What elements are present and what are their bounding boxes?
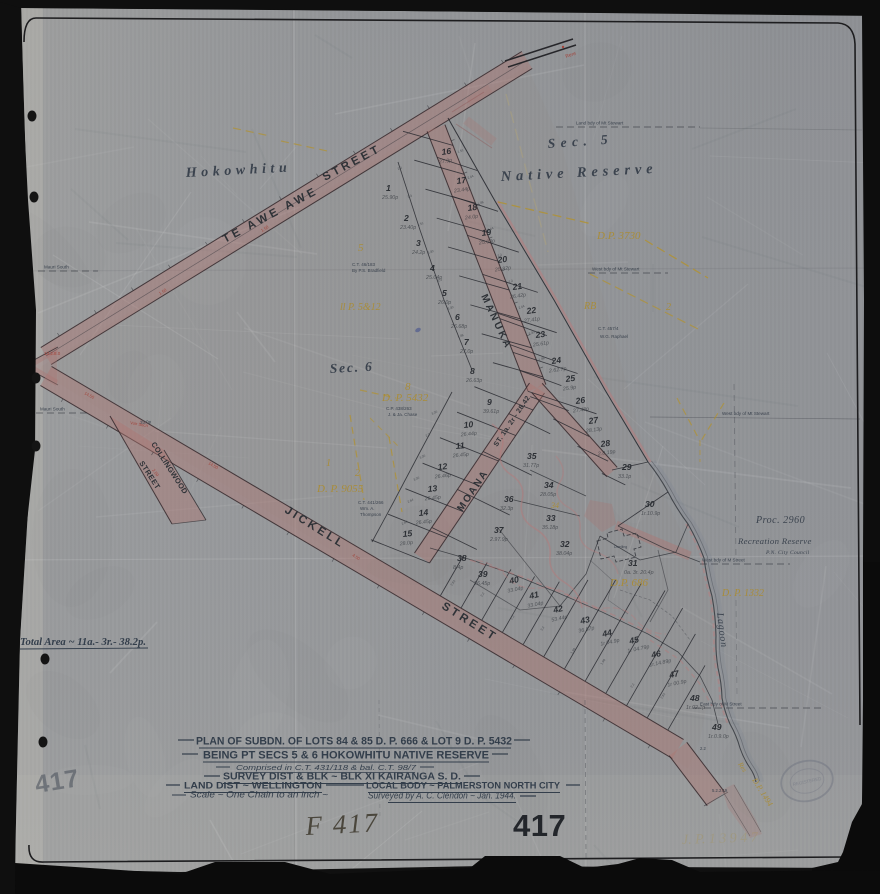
svg-text:28.05p: 28.05p [539,492,556,498]
svg-text:J. & Ja. Chase: J. & Ja. Chase [388,412,418,417]
svg-text:26.63p: 26.63p [465,378,482,384]
svg-text:C.T. 46/183: C.T. 46/183 [352,262,376,267]
svg-text:3: 3 [416,238,421,248]
svg-text:34: 34 [544,480,554,490]
svg-text:1r.10.9p: 1r.10.9p [641,511,660,517]
svg-text:39: 39 [478,569,488,579]
svg-text:West bdy of Mt Stewart: West bdy of Mt Stewart [722,411,770,416]
svg-text:26.45p: 26.45p [473,581,490,587]
svg-text:14: 14 [418,507,429,518]
svg-text:12: 12 [437,461,448,472]
svg-text:RB: RB [583,301,596,312]
svg-text:8: 8 [470,366,475,376]
svg-text:0a. 3r. 20.4p: 0a. 3r. 20.4p [624,570,654,576]
svg-text:6: 6 [455,312,460,322]
svg-text:35.18p: 35.18p [542,525,558,531]
svg-text:23.40p: 23.40p [399,225,416,231]
svg-text:1r.0.9.0p: 1r.0.9.0p [708,734,729,740]
svg-text:By P.S. Bradfield: By P.S. Bradfield [352,268,386,273]
svg-text:25.90p: 25.90p [381,195,398,201]
svg-text:23: 23 [534,329,546,340]
svg-text:1: 1 [386,183,391,193]
svg-text:C.T. 441/266: C.T. 441/266 [358,500,384,505]
svg-text:31.77p: 31.77p [523,463,539,469]
svg-text:ll P. 5&12: ll P. 5&12 [340,302,381,313]
svg-text:25: 25 [564,373,576,384]
svg-text:Sec. 6: Sec. 6 [329,359,372,376]
svg-text:D. P. 5432: D. P. 5432 [381,392,429,404]
svg-text:24.2p: 24.2p [411,250,425,256]
svg-text:Mauri South: Mauri South [40,407,65,412]
svg-text:30: 30 [645,499,655,509]
svg-text:16: 16 [441,146,452,157]
svg-text:D. P. 9055: D. P. 9055 [316,483,364,495]
svg-text:37: 37 [494,525,505,535]
svg-text:13: 13 [427,483,438,494]
svg-text:27.0p: 27.0p [459,349,473,355]
svg-text:2: 2 [666,302,671,313]
svg-text:Thompson: Thompson [360,512,382,517]
svg-text:26.0p: 26.0p [437,300,451,306]
svg-text:32.3p: 32.3p [500,506,513,512]
svg-text:39.61p: 39.61p [483,409,499,415]
svg-text:26: 26 [574,395,586,406]
svg-text:W.G. Raphael: W.G. Raphael [600,334,628,339]
svg-text:D.P. 3730: D.P. 3730 [596,230,641,242]
svg-text:PLAN OF SUBDN. OF LOTS 84 & 85: PLAN OF SUBDN. OF LOTS 84 & 85 D. P. 666… [196,736,512,748]
svg-text:Surveyed by A. C. Clendon ~: Surveyed by A. C. Clendon ~ Jan. 1944. [368,791,516,801]
svg-text:2: 2 [355,468,360,479]
svg-text:West bdy of Mt Stewart: West bdy of Mt Stewart [592,267,640,272]
svg-text:24: 24 [550,355,562,366]
svg-text:Scale ~ One Chain to an inch ~: Scale ~ One Chain to an inch ~ [190,790,328,800]
svg-text:9: 9 [487,397,492,407]
svg-text:18: 18 [467,202,478,213]
svg-text:33.1p: 33.1p [618,474,631,480]
svg-text:5: 5 [358,242,364,254]
svg-text:Total Area ~ 11a.- 3r.- 38.2p.: Total Area ~ 11a.- 3r.- 38.2p. [20,637,146,648]
svg-text:13.2.8.0: 13.2.8.0 [44,351,61,356]
svg-text:Proc. 2960: Proc. 2960 [755,515,805,526]
svg-text:15: 15 [402,528,413,539]
svg-text:5: 5 [442,288,447,298]
svg-text:2: 2 [403,213,409,223]
svg-text:11: 11 [455,440,465,451]
svg-text:Land bdy of Mt Stewart: Land bdy of Mt Stewart [576,121,624,126]
svg-text:2.97.9p: 2.97.9p [489,537,508,543]
svg-text:49: 49 [711,722,722,732]
svg-text:Dwelling: Dwelling [614,545,627,549]
svg-text:West bdy of M Street: West bdy of M Street [702,558,746,563]
svg-text:31: 31 [628,558,638,568]
svg-text:1r.02.1p: 1r.02.1p [686,705,705,711]
svg-text:5.2.2.19: 5.2.2.19 [712,788,728,793]
svg-text:34: 34 [550,501,559,510]
svg-text:36: 36 [504,494,514,504]
svg-text:2.2: 2.2 [700,746,706,751]
svg-text:8.4p: 8.4p [453,565,463,571]
svg-text:10: 10 [463,419,474,430]
svg-text:38: 38 [457,553,467,563]
svg-text:417: 417 [513,808,566,843]
svg-text:F 417: F 417 [304,807,380,841]
svg-text:35: 35 [527,451,537,461]
svg-text:38.04p: 38.04p [556,551,572,557]
svg-text:33: 33 [546,513,556,523]
svg-text:East bdy of M Street: East bdy of M Street [700,702,742,707]
svg-text:4: 4 [429,263,435,273]
svg-text:C.P. 438/263: C.P. 438/263 [386,406,412,411]
svg-text:1: 1 [326,458,331,469]
svg-text:P.N. City Council: P.N. City Council [765,550,810,556]
svg-text:Wm. A.: Wm. A. [360,506,375,511]
svg-text:Recreation Reserve: Recreation Reserve [737,536,812,546]
svg-text:48: 48 [689,693,700,703]
svg-text:D.P. 686: D.P. 686 [609,577,648,589]
svg-text:C.T. 457/4: C.T. 457/4 [598,326,619,331]
svg-text:J. P. 1 3 9 4 7: J. P. 1 3 9 4 7 [682,830,759,848]
svg-text:26.68p: 26.68p [450,324,467,330]
svg-text:29: 29 [621,462,632,472]
svg-text:28: 28 [599,438,611,449]
svg-text:22: 22 [525,305,537,316]
svg-text:Mauri South: Mauri South [44,265,69,270]
svg-text:D. P. 1332: D. P. 1332 [721,588,764,599]
svg-text:32: 32 [560,539,570,549]
svg-text:BEING PT SECS 5 & 6 HOKOWHITU: BEING PT SECS 5 & 6 HOKOWHITU NATIVE RES… [203,750,489,762]
